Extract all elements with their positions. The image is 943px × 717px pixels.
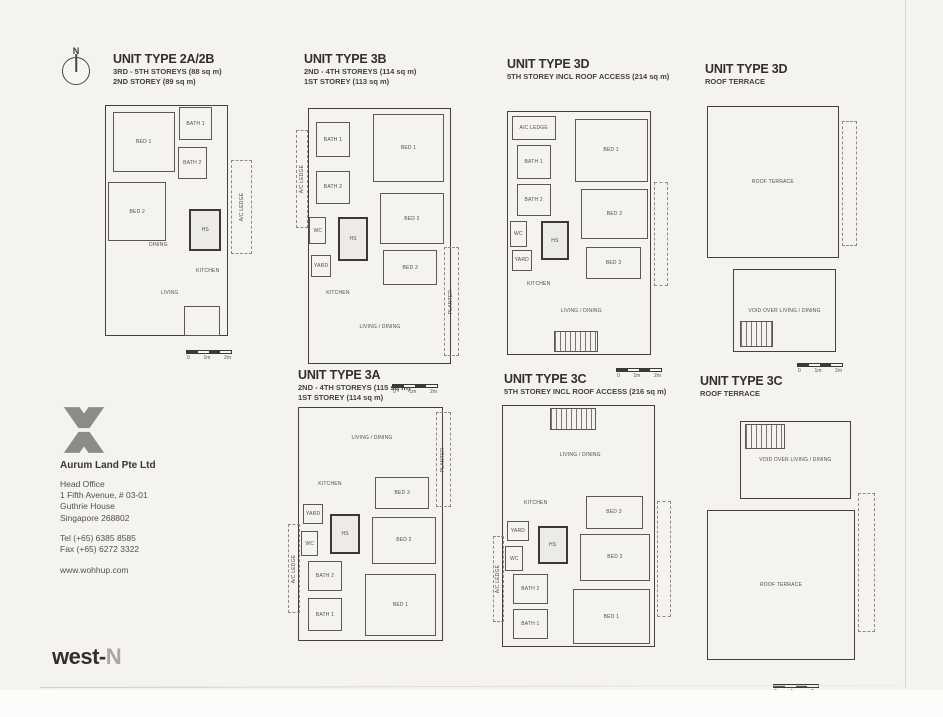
room-label: HS (551, 238, 558, 244)
room-label: BED 2 (607, 554, 622, 560)
room-bath-1: BATH 1 (513, 609, 549, 639)
room-bed-2: BED 2 (580, 534, 649, 582)
company-contact: Tel (+65) 6385 8585 Fax (+65) 6272 3322 (60, 533, 139, 555)
room-label: VOID OVER LIVING / DINING (748, 308, 820, 314)
scale-label: 2m (654, 373, 661, 379)
room-label: KITCHEN (318, 481, 341, 487)
room-label: PLANTER (440, 447, 446, 471)
room-yard: YARD (303, 504, 323, 524)
scale-bar-graphic (797, 363, 843, 367)
room-bath-1: BATH 1 (179, 107, 211, 139)
website-line: www.wohhup.com (60, 565, 129, 576)
room-yard: YARD (507, 521, 528, 541)
plan-shape (654, 182, 668, 287)
scale-label: 0 (393, 389, 396, 395)
scale-label: 1m (814, 368, 821, 374)
room-label: BATH 2 (525, 197, 543, 203)
north-indicator: N (60, 46, 92, 85)
scale-bar-graphic (186, 350, 232, 354)
room-label: A/C LEDGE (299, 165, 305, 193)
unit-header-3b: UNIT TYPE 3B 2ND - 4TH STOREYS (114 sq m… (304, 52, 416, 86)
room-bath-2: BATH 2 (517, 184, 551, 215)
plan-shape (550, 408, 596, 431)
room-label: BATH 1 (525, 159, 543, 165)
floor-plan-3d: A/C LEDGEBATH 1BED 1BATH 2WCHSYARDBED 2K… (498, 103, 668, 365)
office-label: Head Office (60, 479, 148, 490)
unit-header-2a2b: UNIT TYPE 2A/2B 3RD - 5TH STOREYS (88 sq… (113, 52, 222, 86)
room-a-c-ledge: A/C LEDGE (512, 116, 556, 140)
room-hs: HS (338, 217, 368, 261)
room-label: BED 1 (393, 602, 408, 608)
room-yard: YARD (311, 255, 331, 277)
room-bath-2: BATH 2 (513, 574, 549, 604)
unit-subtitle: 3RD - 5TH STOREYS (88 sq m) (113, 67, 222, 76)
company-website: www.wohhup.com (60, 565, 129, 576)
room-living-dining: LIVING / DINING (325, 412, 419, 464)
room-label: ROOF TERRACE (760, 582, 802, 588)
room-planter: PLANTER (444, 247, 459, 356)
west-n-logo: west-N (52, 644, 121, 670)
scale-bar: 01m2m (797, 363, 843, 374)
scale-label: 2m (430, 389, 437, 395)
scale-label: 1m (633, 373, 640, 379)
scale-bar-graphic (616, 368, 662, 372)
room-a-c-ledge: A/C LEDGE (231, 160, 252, 254)
room-label: YARD (306, 511, 320, 517)
room-label: BATH 2 (324, 184, 342, 190)
room-bath-1: BATH 1 (316, 122, 350, 157)
plan-shape (184, 306, 220, 336)
scale-bar: 01m2m (186, 350, 232, 361)
room-label: KITCHEN (196, 268, 219, 274)
plan-shape (842, 121, 857, 247)
room-kitchen: KITCHEN (514, 488, 557, 518)
room-label: BED 2 (404, 216, 419, 222)
unit-subtitle: ROOF TERRACE (705, 77, 787, 86)
room-label: LIVING / DINING (351, 435, 392, 441)
floor-plan-3d-roof: ROOF TERRACEVOID OVER LIVING / DINING (697, 92, 862, 378)
room-label: WC (305, 541, 314, 547)
room-label: BED 1 (604, 614, 619, 620)
room-a-c-ledge: A/C LEDGE (288, 524, 300, 613)
unit-subtitle: 1ST STOREY (113 sq m) (304, 77, 416, 86)
room-label: BED 3 (606, 260, 621, 266)
floor-plan-3b: A/C LEDGEBATH 1BED 1BATH 2WCHSYARDBED 2K… (296, 103, 464, 375)
room-hs: HS (538, 526, 568, 564)
scale-bar-graphic (392, 384, 438, 388)
room-label: BATH 2 (316, 573, 334, 579)
room-bed-1: BED 1 (575, 119, 648, 182)
unit-subtitle: 5TH STOREY INCL ROOF ACCESS (216 sq m) (504, 387, 666, 396)
compass-icon (62, 57, 90, 85)
room-bed-2: BED 2 (380, 193, 444, 245)
company-address: Head Office 1 Fifth Avenue, # 03-01 Guth… (60, 479, 148, 524)
brand-text-light: N (106, 644, 121, 669)
room-label: YARD (511, 528, 525, 534)
room-roof-terrace: ROOF TERRACE (707, 106, 839, 258)
address-line: Singapore 268802 (60, 513, 148, 524)
room-wc: WC (301, 531, 318, 556)
room-label: BED 1 (136, 139, 151, 145)
scanned-floorplan-page: N UNIT TYPE 2A/2B 3RD - 5TH STOREYS (88 … (0, 0, 943, 717)
room-living-dining: LIVING / DINING (333, 299, 427, 356)
room-wc: WC (510, 221, 527, 247)
room-label: YARD (515, 257, 529, 263)
room-bed-3: BED 3 (586, 247, 640, 278)
room-label: DINING (149, 242, 168, 248)
room-bath-2: BATH 2 (308, 561, 342, 591)
room-kitchen: KITCHEN (189, 241, 226, 301)
scale-label: 0 (617, 373, 620, 379)
unit-header-3d-roof: UNIT TYPE 3D ROOF TERRACE (705, 62, 787, 86)
room-bed-3: BED 3 (586, 496, 643, 529)
scale-label: 0 (187, 355, 190, 361)
room-label: BATH 1 (186, 121, 204, 127)
unit-subtitle: ROOF TERRACE (700, 389, 782, 398)
room-bath-1: BATH 1 (517, 145, 551, 179)
room-label: BED 1 (401, 145, 416, 151)
unit-title: UNIT TYPE 3D (705, 62, 787, 76)
room-label: ROOF TERRACE (752, 179, 794, 185)
scale-label: 1m (203, 355, 210, 361)
floor-plan-3c-roof: VOID OVER LIVING / DININGROOF TERRACE (700, 410, 880, 688)
floor-plan-3c: LIVING / DININGKITCHENBED 3YARDHSWCBED 2… (493, 400, 671, 652)
scale-bar: 01m2m (392, 384, 438, 395)
room-label: KITCHEN (524, 500, 547, 506)
room-label: BATH 1 (324, 137, 342, 143)
room-bed-1: BED 1 (373, 114, 444, 182)
room-label: LIVING (161, 290, 179, 296)
room-bed-1: BED 1 (113, 112, 175, 172)
room-label: WC (313, 228, 322, 234)
scan-margin (0, 690, 943, 717)
room-label: HS (202, 227, 209, 233)
compass-needle (75, 54, 77, 72)
brand-text-dark: west- (52, 644, 106, 669)
room-label: KITCHEN (527, 281, 550, 287)
room-planter: PLANTER (436, 412, 451, 506)
unit-title: UNIT TYPE 2A/2B (113, 52, 222, 66)
scale-label: 1m (409, 389, 416, 395)
room-label: KITCHEN (326, 290, 349, 296)
room-wc: WC (309, 217, 326, 244)
scale-label: 2m (224, 355, 231, 361)
room-label: PLANTER (448, 289, 454, 313)
unit-subtitle: 2ND - 4TH STOREYS (114 sq m) (304, 67, 416, 76)
room-label: A/C LEDGE (519, 125, 547, 131)
floor-plan-2a2b: BED 1BATH 1BATH 2BED 2HSA/C LEDGEDININGK… (100, 100, 262, 348)
room-roof-terrace: ROOF TERRACE (707, 510, 855, 660)
room-label: WC (514, 231, 523, 237)
room-label: A/C LEDGE (291, 554, 297, 582)
room-hs: HS (330, 514, 360, 554)
room-label: HS (549, 542, 556, 548)
room-bath-1: BATH 1 (308, 598, 342, 630)
room-a-c-ledge: A/C LEDGE (493, 536, 504, 622)
room-label: BED 3 (403, 265, 418, 271)
room-bed-2: BED 2 (372, 517, 436, 564)
room-wc: WC (505, 546, 523, 571)
room-dining: DINING (141, 231, 177, 258)
room-label: BATH 2 (183, 160, 201, 166)
unit-subtitle: 2ND STOREY (89 sq m) (113, 77, 222, 86)
room-label: YARD (314, 263, 328, 269)
room-living-dining: LIVING / DINING (539, 289, 624, 334)
plan-shape (858, 493, 874, 632)
fax-line: Fax (+65) 6272 3322 (60, 544, 139, 555)
room-hs: HS (541, 221, 570, 260)
room-bath-2: BATH 2 (178, 147, 207, 179)
room-label: LIVING / DINING (359, 324, 400, 330)
address-line: 1 Fifth Avenue, # 03-01 (60, 490, 148, 501)
floor-plan-3a: LIVING / DININGPLANTERKITCHENBED 3YARDHS… (288, 400, 456, 648)
scale-bar: 01m2m (616, 368, 662, 379)
room-bed-1: BED 1 (573, 589, 650, 644)
room-label: BATH 1 (521, 621, 539, 627)
unit-subtitle: 5TH STOREY INCL ROOF ACCESS (214 sq m) (507, 72, 669, 81)
plan-shape (740, 321, 773, 347)
scale-label: 0 (798, 368, 801, 374)
room-living-dining: LIVING / DINING (536, 430, 625, 480)
room-label: VOID OVER LIVING / DINING (759, 457, 831, 463)
room-label: BED 2 (396, 537, 411, 543)
room-label: HS (349, 236, 356, 242)
room-bath-2: BATH 2 (316, 171, 350, 204)
room-label: LIVING / DINING (561, 308, 602, 314)
woh-hup-logo-icon (62, 406, 106, 454)
room-label: LIVING / DINING (560, 452, 601, 458)
room-label: BED 3 (606, 509, 621, 515)
room-bed-3: BED 3 (383, 250, 437, 285)
room-label: A/C LEDGE (495, 565, 501, 593)
scale-label: 2m (835, 368, 842, 374)
room-label: BED 2 (607, 211, 622, 217)
plan-shape (745, 424, 785, 449)
room-label: HS (341, 531, 348, 537)
unit-title: UNIT TYPE 3D (507, 57, 669, 71)
room-bed-2: BED 2 (581, 189, 647, 239)
room-label: BED 1 (603, 147, 618, 153)
room-label: BATH 1 (316, 612, 334, 618)
room-label: BED 3 (395, 490, 410, 496)
room-bed-1: BED 1 (365, 574, 436, 636)
room-label: BED 2 (130, 209, 145, 215)
room-bed-3: BED 3 (375, 477, 429, 509)
company-name: Aurum Land Pte Ltd (60, 460, 156, 471)
room-label: WC (510, 556, 519, 562)
plan-shape (657, 501, 671, 617)
room-a-c-ledge: A/C LEDGE (296, 130, 308, 228)
address-line: Guthrie House (60, 501, 148, 512)
unit-header-3d: UNIT TYPE 3D 5TH STOREY INCL ROOF ACCESS… (507, 57, 669, 81)
room-label: BATH 2 (521, 586, 539, 592)
room-kitchen: KITCHEN (310, 469, 350, 499)
room-label: A/C LEDGE (239, 192, 245, 220)
plan-shape (554, 331, 598, 352)
tel-line: Tel (+65) 6385 8585 (60, 533, 139, 544)
scan-artifact-line (905, 0, 906, 688)
unit-title: UNIT TYPE 3B (304, 52, 416, 66)
